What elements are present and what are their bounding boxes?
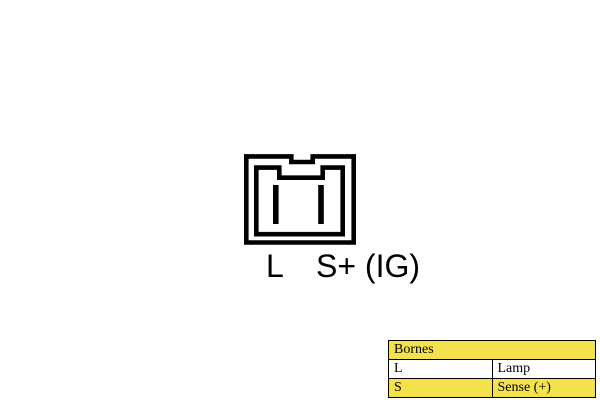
pin-label-l: L xyxy=(266,250,284,282)
diagram-canvas: L S+ (IG) Bornes L Lamp S Sense (+) xyxy=(0,0,600,400)
table-header-cell: Bornes xyxy=(389,341,596,360)
terminal-cell: L xyxy=(389,360,493,379)
pin-label-s: S+ (IG) xyxy=(316,250,420,282)
description-cell: Sense (+) xyxy=(492,379,596,398)
pin-s-blade xyxy=(318,185,324,224)
connector-inner-outline xyxy=(256,168,342,235)
table-row: S Sense (+) xyxy=(389,379,596,398)
pin-l-blade xyxy=(273,185,279,224)
terminals-table: Bornes L Lamp S Sense (+) xyxy=(388,340,596,398)
table-header-row: Bornes xyxy=(389,341,596,360)
table-row: L Lamp xyxy=(389,360,596,379)
description-cell: Lamp xyxy=(492,360,596,379)
terminal-cell: S xyxy=(389,379,493,398)
